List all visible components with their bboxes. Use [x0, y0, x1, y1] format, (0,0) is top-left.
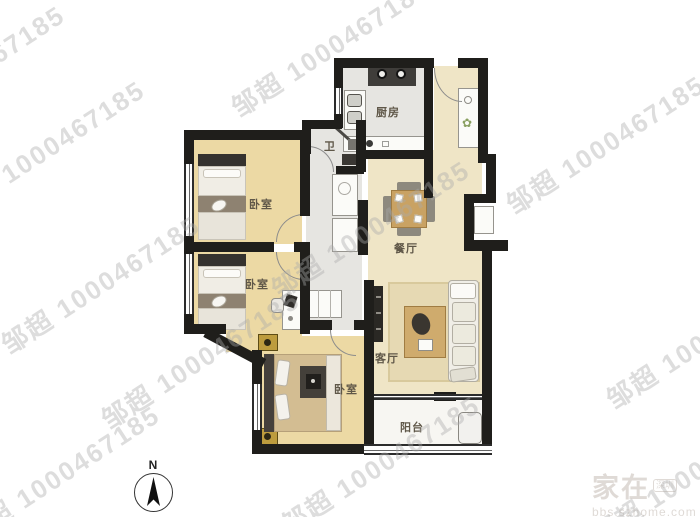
logo-region-badge: 深圳: [653, 479, 677, 492]
sofa-cushion: [452, 324, 476, 344]
window: [334, 88, 343, 114]
nightstand-lamp-icon: [264, 433, 271, 440]
compass-circle: [134, 473, 173, 512]
tv-cabinet-detail: [376, 296, 381, 298]
label-dining: 餐厅: [394, 240, 418, 256]
watermark-text: 邹超 1000467185: [498, 65, 700, 221]
bed-pillow: [203, 169, 241, 178]
floorplan-page: ✿: [0, 0, 700, 517]
counter-appliance-icon: [366, 140, 373, 147]
watermark-text: 邹超 1000467185: [0, 0, 71, 152]
wall: [424, 58, 433, 198]
wall: [364, 344, 374, 454]
balcony-railing: [364, 444, 492, 455]
label-balcony: 阳台: [400, 419, 424, 435]
wall: [482, 250, 492, 454]
balcony-slider: [374, 394, 482, 400]
wall: [300, 130, 310, 216]
decor-icon: [464, 96, 472, 104]
sofa-cushion: [452, 302, 476, 322]
tv-cabinet-detail: [376, 328, 381, 330]
plate-icon: [394, 193, 403, 202]
wardrobe-divider: [330, 290, 331, 318]
logo-name: 家在: [592, 466, 650, 505]
wall: [356, 120, 366, 172]
wall: [336, 166, 364, 174]
wall: [366, 150, 428, 159]
wall: [252, 444, 374, 454]
stove-burner-icon: [377, 69, 387, 79]
wall: [294, 242, 310, 252]
washing-machine-door-icon: [338, 182, 351, 195]
wall: [184, 130, 310, 140]
bed-pillow: [203, 269, 241, 278]
bed-headboard: [198, 254, 246, 266]
site-logo: 家在 深圳 bbs.szhome.com: [592, 466, 697, 517]
label-bedroom-top: 卧室: [249, 196, 273, 212]
bed-headboard: [264, 354, 274, 432]
washing-machine: [332, 174, 358, 216]
sofa-cushion: [452, 346, 476, 366]
wall: [300, 320, 332, 330]
plate-icon: [413, 193, 422, 202]
watermark-text: 邹超 1000467185: [0, 205, 206, 361]
desk-lamp-icon: [288, 316, 293, 321]
wall: [334, 58, 343, 88]
label-bathroom: 卫: [324, 138, 336, 154]
label-bedroom-master: 卧室: [334, 381, 358, 397]
label-living: 客厅: [375, 350, 399, 366]
stove: [368, 66, 416, 86]
table-tray: [418, 339, 433, 351]
tv-cabinet: [374, 286, 383, 342]
plant-icon: ✿: [462, 116, 472, 130]
wall: [364, 280, 374, 344]
bed-foot: [198, 212, 246, 240]
watermark-text: 邹超 1000467185: [598, 260, 700, 416]
wall: [184, 242, 274, 252]
wall: [358, 200, 368, 255]
label-bedroom-middle: 卧室: [245, 276, 269, 292]
counter-appliance-icon: [382, 141, 389, 147]
sink-basin-icon: [347, 94, 362, 107]
watermark-text: 邹超 1000467185: [0, 70, 151, 226]
tv-cabinet-detail: [376, 312, 381, 314]
nightstand-lamp-icon: [264, 339, 271, 346]
desk-chair: [271, 298, 284, 313]
wardrobe-divider: [318, 290, 319, 318]
bed-accent-dot: [311, 379, 315, 383]
wall: [334, 58, 434, 68]
hall-cabinet: [332, 218, 358, 252]
window: [184, 254, 194, 314]
label-kitchen: 厨房: [376, 104, 400, 120]
window: [184, 164, 194, 236]
compass-needle-icon: [135, 474, 172, 511]
bed-headboard: [198, 154, 246, 166]
window: [252, 384, 262, 430]
logo-site-url: bbs.szhome.com: [592, 505, 697, 517]
compass-north-label: N: [130, 458, 176, 472]
sofa-side-table: [450, 283, 476, 299]
stove-burner-icon: [396, 69, 406, 79]
ac-platform: [474, 206, 494, 234]
balcony-washer: [458, 412, 482, 444]
plate-icon: [413, 214, 422, 223]
wardrobe: [306, 290, 342, 318]
wall: [478, 58, 488, 162]
compass: N: [130, 458, 176, 512]
wall: [184, 130, 194, 164]
